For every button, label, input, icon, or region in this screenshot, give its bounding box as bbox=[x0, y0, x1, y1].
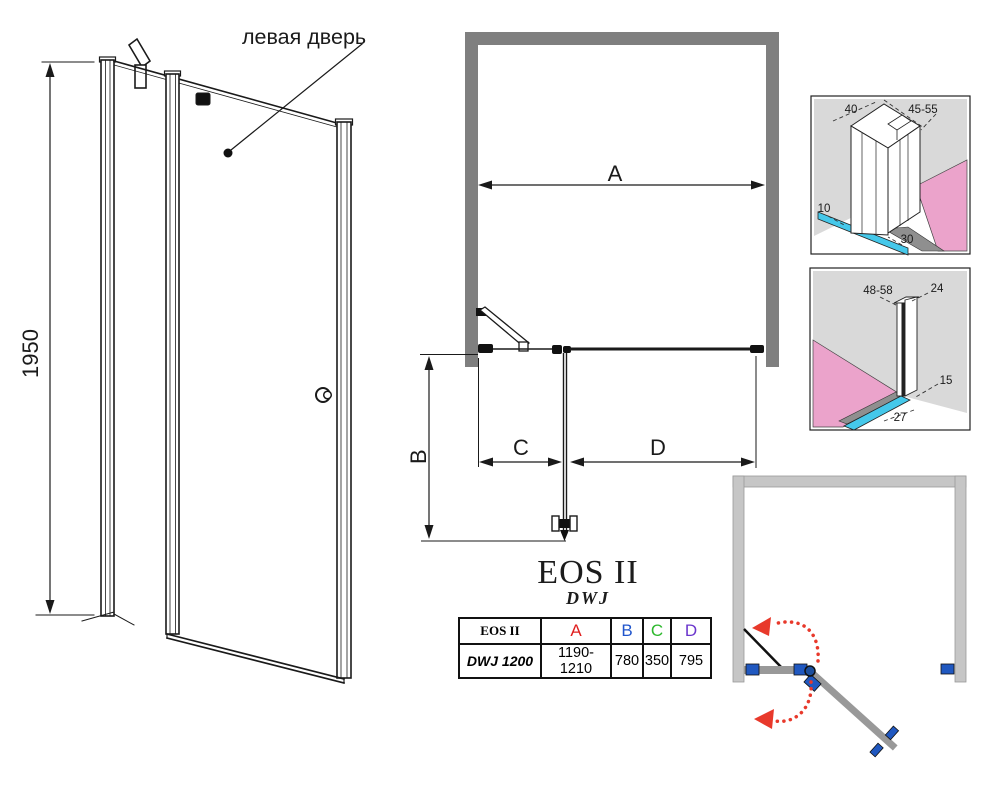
product-series-title: EOS II bbox=[462, 556, 714, 590]
dimension-d: D bbox=[570, 356, 756, 468]
detail2-dim-27: 27 bbox=[894, 412, 907, 424]
pivot-hardware bbox=[552, 345, 562, 354]
top-view-drawing: A B bbox=[406, 32, 779, 541]
swing-arc-upper bbox=[774, 622, 818, 661]
table-header-a: A bbox=[541, 618, 611, 644]
door-handle-plan bbox=[552, 516, 559, 531]
detail2-dim-15: 15 bbox=[940, 375, 953, 387]
wall-right bbox=[766, 45, 779, 367]
pivot-point bbox=[805, 666, 815, 676]
dimension-b: B bbox=[406, 355, 566, 542]
support-strut bbox=[480, 307, 529, 347]
detail2-profile bbox=[894, 297, 919, 396]
table-cell-model: DWJ 1200 bbox=[459, 644, 541, 678]
leader-dot-icon bbox=[224, 149, 233, 158]
hinge-profile bbox=[165, 71, 181, 634]
swing-arrow-upper-icon bbox=[752, 617, 771, 636]
door-swing-diagram bbox=[733, 476, 966, 763]
table-header-d: D bbox=[671, 618, 711, 644]
open-door-plan bbox=[552, 353, 577, 541]
dimension-c: C bbox=[479, 358, 563, 467]
closing-profile-right bbox=[336, 119, 353, 678]
dim-c-label: C bbox=[513, 435, 529, 460]
height-dim-label: 1950 bbox=[18, 329, 43, 378]
table-data-row: DWJ 1200 1190-1210 780 350 795 bbox=[459, 644, 711, 678]
wall-top bbox=[465, 32, 779, 45]
table-header-b: B bbox=[611, 618, 643, 644]
height-dimension: 1950 bbox=[18, 62, 94, 615]
open-door-bar bbox=[799, 662, 906, 763]
detail2-dim-48-58: 48-58 bbox=[863, 285, 892, 297]
wall-profile-left bbox=[100, 57, 116, 616]
door-knob bbox=[316, 388, 331, 402]
table-cell-b: 780 bbox=[611, 644, 643, 678]
dimension-a: A bbox=[478, 161, 765, 190]
wall-clip-right bbox=[941, 664, 954, 674]
table-cell-d: 795 bbox=[671, 644, 711, 678]
bottom-sill bbox=[82, 612, 344, 683]
dim-d-label: D bbox=[650, 435, 666, 460]
detail1-dim-45-55: 45-55 bbox=[908, 104, 937, 116]
door-label: левая дверь bbox=[242, 25, 366, 49]
detail2-dim-24: 24 bbox=[931, 283, 944, 295]
door-handle-inner bbox=[870, 743, 883, 757]
technical-drawing-page: 1950 bbox=[0, 0, 1000, 785]
detail-wall-profile: 40 45-55 10 30 bbox=[811, 96, 970, 255]
wall-clip-left bbox=[746, 664, 759, 675]
detail1-dim-10: 10 bbox=[818, 203, 831, 215]
swing-arrow-lower-icon bbox=[754, 709, 774, 729]
hinge-bracket bbox=[478, 344, 493, 353]
detail-glass-profile: 48-58 24 15 27 bbox=[810, 268, 970, 430]
detail1-dim-40: 40 bbox=[845, 104, 858, 116]
detail1-profile bbox=[851, 104, 920, 235]
wall-left bbox=[465, 45, 478, 367]
dimensions-table: EOS II A B C D DWJ 1200 1190-1210 780 35… bbox=[458, 617, 712, 679]
door-hardware bbox=[476, 307, 764, 354]
walls bbox=[465, 32, 779, 367]
detail1-dim-30: 30 bbox=[901, 234, 914, 246]
table-cell-c: 350 bbox=[643, 644, 671, 678]
table-header-row: EOS II A B C D bbox=[459, 618, 711, 644]
dim-a-label: A bbox=[608, 161, 623, 186]
arrow-up-icon bbox=[46, 63, 55, 77]
glass-top-edge bbox=[114, 61, 337, 127]
top-hinge bbox=[129, 39, 150, 88]
table-header-c: C bbox=[643, 618, 671, 644]
swing-walls bbox=[733, 476, 966, 682]
table-header-product: EOS II bbox=[459, 618, 541, 644]
wall-bracket bbox=[750, 345, 764, 353]
arrow-down-icon bbox=[46, 600, 55, 614]
product-model-title: DWJ bbox=[462, 590, 714, 606]
front-view-drawing: 1950 bbox=[18, 25, 366, 683]
closed-door-line bbox=[744, 629, 783, 669]
swing-arc-lower bbox=[775, 682, 811, 721]
dim-b-label: B bbox=[406, 449, 431, 464]
product-title-block: EOS II DWJ bbox=[462, 556, 714, 606]
table-cell-a: 1190-1210 bbox=[541, 644, 611, 678]
